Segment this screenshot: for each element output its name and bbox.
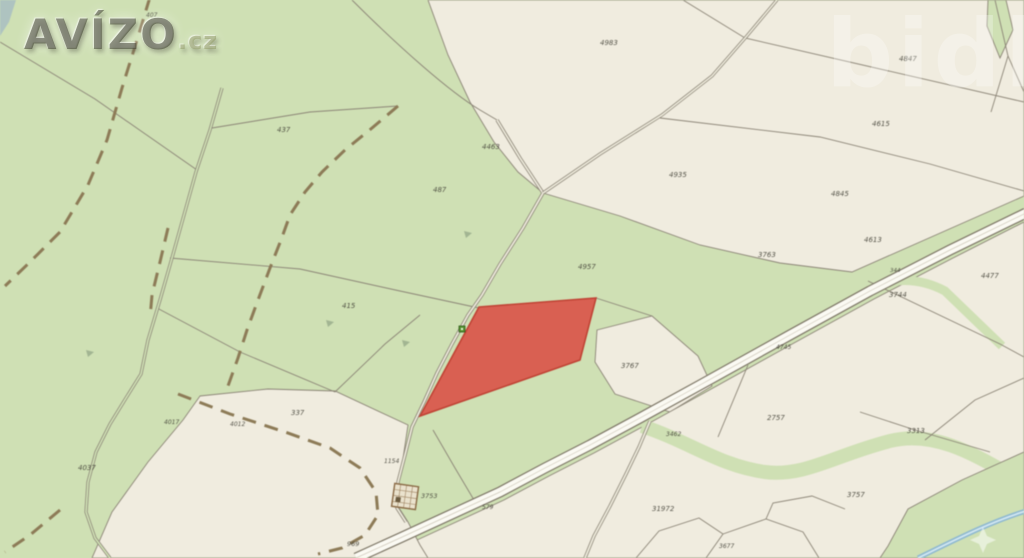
parcel-label: 3313 — [907, 427, 925, 435]
building-symbol — [392, 483, 419, 509]
parcel-label: 337 — [291, 409, 305, 417]
parcel-label: 3744 — [889, 291, 907, 299]
parcel-label: 4613 — [864, 236, 882, 244]
parcel-label: 3767 — [621, 362, 639, 370]
avizo-watermark: AVÍZO.cz — [24, 10, 218, 59]
parcel-label: 3677 — [719, 543, 734, 550]
parcel-label: 437 — [277, 126, 291, 134]
avizo-watermark-text: AVÍZO — [24, 10, 178, 59]
parcel-label: 344 — [890, 268, 901, 274]
bidli-watermark: bidli — [826, 0, 1024, 109]
parcel-label: 4615 — [872, 120, 890, 128]
map-canvas[interactable]: 4074374874463498349354847461548454613344… — [0, 0, 1024, 558]
parcel-label: 4017 — [164, 419, 179, 426]
parcel-label: 4037 — [78, 464, 96, 472]
avizo-watermark-suffix: .cz — [178, 27, 218, 55]
parcel-label: 4745 — [776, 344, 791, 351]
parcel-label: 487 — [433, 186, 447, 194]
parcel-label: 4012 — [230, 421, 245, 428]
parcel-label: 2757 — [767, 414, 785, 422]
parcel-label: 579 — [482, 504, 494, 511]
parcel-label: 1154 — [384, 458, 399, 465]
parcel-label: 3753 — [421, 492, 438, 500]
parcel-label: 4957 — [578, 263, 596, 271]
parcel-label: 969 — [347, 540, 359, 548]
parcel-label: 3763 — [758, 251, 776, 259]
parcel-label: 3462 — [666, 431, 681, 438]
parcel-label: 4983 — [600, 39, 618, 47]
parcel-label: 4845 — [831, 190, 849, 198]
parcel-label: 4463 — [482, 143, 500, 151]
parcel-label: 4477 — [981, 272, 999, 280]
parcel-label: 3757 — [847, 491, 865, 499]
parcel-label: 415 — [342, 302, 356, 310]
parcel-label: 4935 — [669, 171, 687, 179]
survey-marker — [459, 326, 465, 332]
parcel-label: 31972 — [652, 505, 675, 513]
